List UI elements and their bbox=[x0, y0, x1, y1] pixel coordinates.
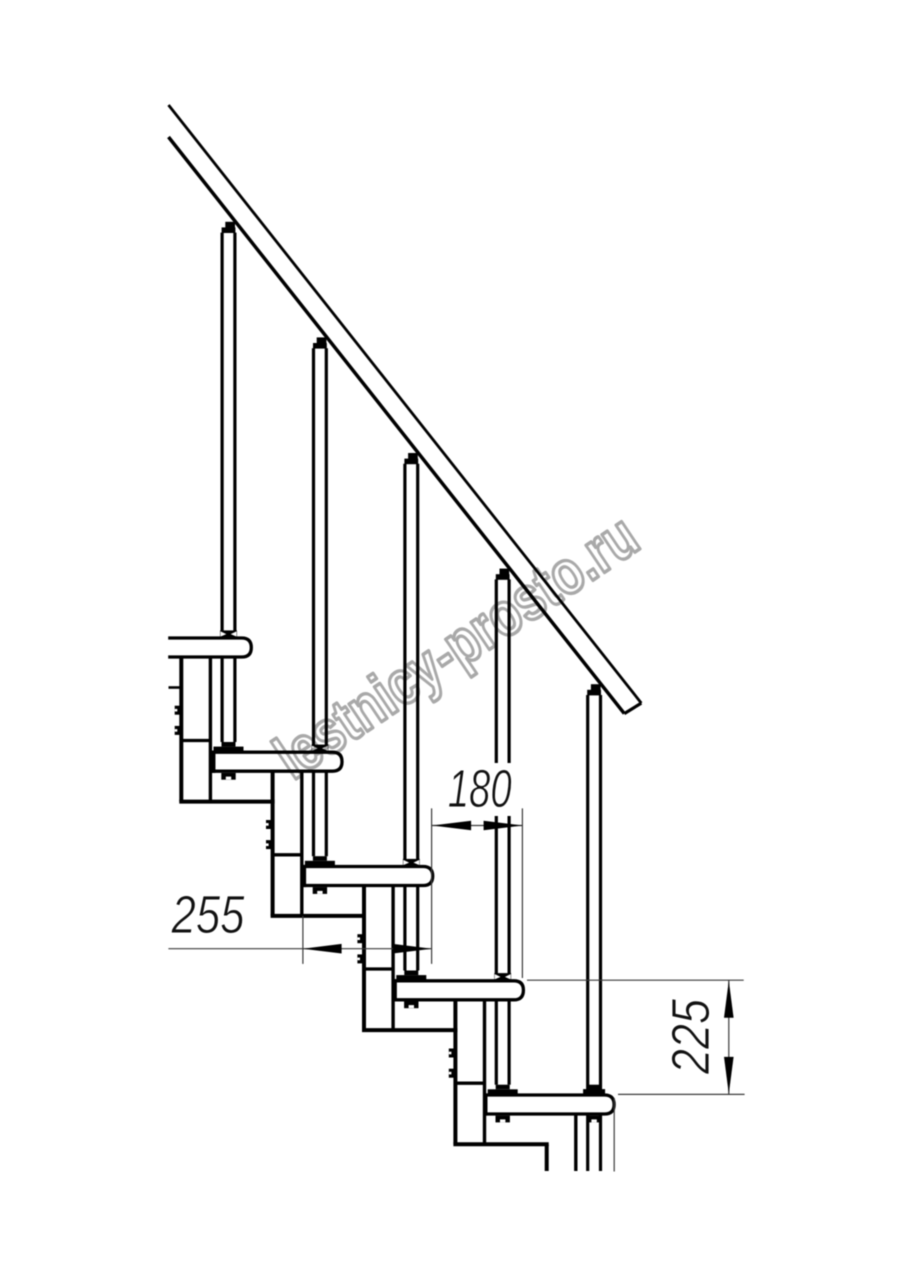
svg-text:180: 180 bbox=[448, 759, 512, 819]
svg-text:255: 255 bbox=[171, 885, 246, 945]
svg-text:225: 225 bbox=[661, 998, 721, 1075]
